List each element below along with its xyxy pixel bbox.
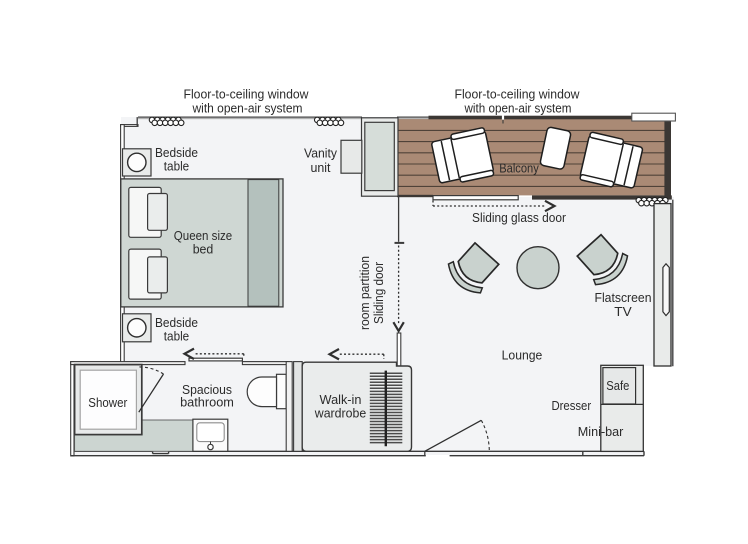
svg-text:Lounge: Lounge — [502, 349, 543, 363]
svg-text:Balcony: Balcony — [499, 162, 539, 176]
svg-text:unit: unit — [311, 161, 332, 175]
svg-text:TV: TV — [614, 305, 632, 319]
svg-text:Vanity: Vanity — [304, 147, 338, 161]
svg-text:Sliding glass door: Sliding glass door — [472, 211, 566, 225]
svg-text:with open-air system: with open-air system — [192, 102, 303, 116]
svg-text:Sliding door: Sliding door — [372, 262, 386, 324]
svg-text:Mini-bar: Mini-bar — [578, 425, 624, 439]
svg-text:room partition: room partition — [358, 256, 372, 330]
svg-text:with open-air system: with open-air system — [464, 102, 572, 116]
svg-text:bed: bed — [193, 243, 214, 257]
svg-text:Bedside: Bedside — [155, 146, 198, 160]
svg-text:table: table — [164, 330, 189, 344]
svg-text:Flatscreen: Flatscreen — [595, 291, 652, 305]
svg-text:bathroom: bathroom — [180, 396, 234, 410]
svg-text:Floor-to-ceiling window: Floor-to-ceiling window — [455, 88, 581, 102]
svg-text:Safe: Safe — [606, 379, 629, 393]
svg-text:table: table — [164, 160, 189, 174]
svg-text:Walk-in: Walk-in — [320, 393, 362, 407]
svg-text:wardrobe: wardrobe — [314, 407, 366, 421]
svg-text:Bedside: Bedside — [155, 316, 198, 330]
svg-text:Shower: Shower — [88, 396, 127, 410]
svg-text:Queen size: Queen size — [174, 229, 232, 243]
svg-text:Dresser: Dresser — [551, 399, 591, 413]
svg-text:Floor-to-ceiling window: Floor-to-ceiling window — [184, 88, 310, 102]
